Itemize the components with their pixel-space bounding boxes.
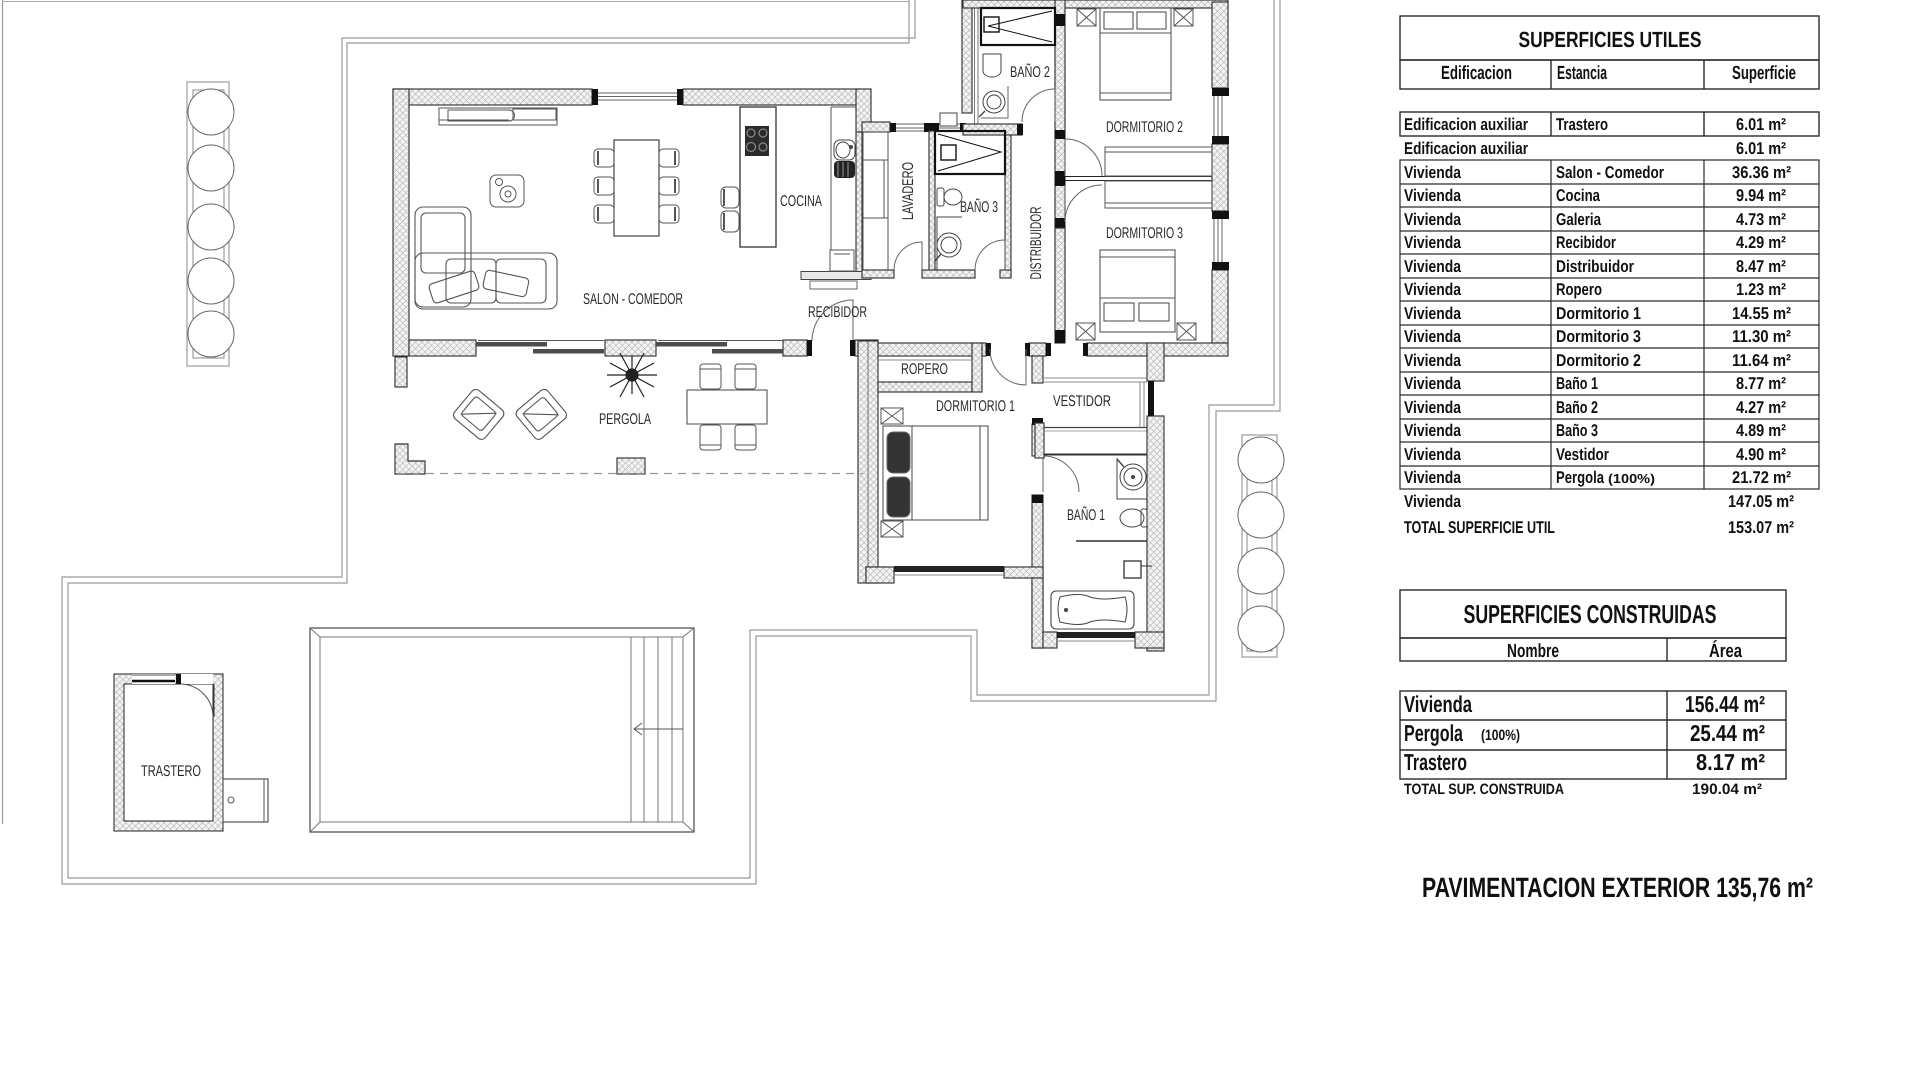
svg-text:TRASTERO: TRASTERO [141,763,201,780]
svg-text:21.72 m²: 21.72 m² [1732,468,1791,487]
svg-text:Vivienda: Vivienda [1404,327,1461,346]
svg-text:Trastero: Trastero [1556,115,1608,134]
svg-text:11.30 m²: 11.30 m² [1732,327,1791,346]
svg-text:Edificacion: Edificacion [1441,63,1512,84]
svg-text:Recibidor: Recibidor [1556,233,1616,252]
svg-text:Trastero: Trastero [1404,749,1467,775]
svg-text:Dormitorio 3: Dormitorio 3 [1556,327,1641,346]
svg-text:Baño 3: Baño 3 [1556,421,1598,440]
svg-text:153.07 m²: 153.07 m² [1728,518,1794,537]
svg-text:BAÑO 1: BAÑO 1 [1067,506,1105,524]
svg-text:ROPERO: ROPERO [901,361,948,378]
svg-text:TOTAL SUP. CONSTRUIDA: TOTAL SUP. CONSTRUIDA [1404,781,1564,798]
svg-text:BAÑO 2: BAÑO 2 [1010,63,1050,81]
svg-text:Vivienda: Vivienda [1404,351,1461,370]
svg-text:Ropero: Ropero [1556,280,1602,299]
svg-text:147.05 m²: 147.05 m² [1728,492,1794,511]
svg-text:Estancia: Estancia [1557,63,1607,84]
svg-text:Edificacion auxiliar: Edificacion auxiliar [1404,115,1528,134]
svg-text:Dormitorio 1: Dormitorio 1 [1556,304,1641,323]
svg-text:(100%): (100%) [1608,471,1655,486]
svg-text:Distribuidor: Distribuidor [1556,257,1634,276]
svg-text:Vivienda: Vivienda [1404,445,1461,464]
svg-text:9.94 m²: 9.94 m² [1736,186,1786,205]
svg-text:8.47 m²: 8.47 m² [1736,257,1786,276]
svg-text:1.23 m²: 1.23 m² [1736,280,1786,299]
svg-text:Vivienda: Vivienda [1404,186,1461,205]
svg-text:Vivienda: Vivienda [1404,492,1461,511]
svg-text:190.04 m²: 190.04 m² [1692,781,1762,798]
svg-text:4.27 m²: 4.27 m² [1736,398,1786,417]
svg-text:DORMITORIO 2: DORMITORIO 2 [1106,119,1183,136]
svg-text:DORMITORIO 3: DORMITORIO 3 [1106,225,1183,242]
svg-text:Dormitorio 2: Dormitorio 2 [1556,351,1641,370]
svg-text:14.55 m²: 14.55 m² [1732,304,1791,323]
svg-text:25.44 m²: 25.44 m² [1690,720,1765,746]
svg-text:Vivienda: Vivienda [1404,398,1461,417]
svg-text:6.01 m²: 6.01 m² [1736,115,1786,134]
svg-text:Vestidor: Vestidor [1556,445,1609,464]
svg-text:Superficie: Superficie [1732,63,1796,84]
svg-text:DORMITORIO 1: DORMITORIO 1 [936,398,1015,415]
svg-text:Vivienda: Vivienda [1404,421,1461,440]
svg-text:8.17 m²: 8.17 m² [1696,749,1765,775]
svg-text:SALON - COMEDOR: SALON - COMEDOR [583,291,683,308]
svg-text:VESTIDOR: VESTIDOR [1053,393,1111,410]
svg-text:RECIBIDOR: RECIBIDOR [808,304,867,321]
svg-text:Vivienda: Vivienda [1404,468,1461,487]
svg-text:Vivienda: Vivienda [1404,257,1461,276]
svg-text:Galeria: Galeria [1556,210,1601,229]
svg-text:Área: Área [1709,640,1742,662]
svg-text:11.64 m²: 11.64 m² [1732,351,1791,370]
svg-text:Nombre: Nombre [1507,641,1559,662]
svg-text:Vivienda: Vivienda [1404,163,1461,182]
svg-text:Vivienda: Vivienda [1404,280,1461,299]
svg-text:PERGOLA: PERGOLA [599,411,651,428]
svg-text:Vivienda: Vivienda [1404,210,1461,229]
svg-text:36.36 m²: 36.36 m² [1732,163,1791,182]
svg-text:Pergola: Pergola [1556,468,1604,487]
svg-text:LAVADERO: LAVADERO [900,162,917,220]
svg-text:4.90 m²: 4.90 m² [1736,445,1786,464]
svg-text:Baño 1: Baño 1 [1556,374,1598,393]
svg-text:Salon - Comedor: Salon - Comedor [1556,163,1664,182]
svg-text:8.77 m²: 8.77 m² [1736,374,1786,393]
svg-text:Vivienda: Vivienda [1404,374,1461,393]
svg-text:Edificacion auxiliar: Edificacion auxiliar [1404,139,1528,158]
svg-text:156.44 m²: 156.44 m² [1685,691,1765,717]
svg-text:COCINA: COCINA [780,193,822,210]
svg-text:Vivienda: Vivienda [1404,304,1461,323]
svg-text:PAVIMENTACION EXTERIOR 135,76: PAVIMENTACION EXTERIOR 135,76 m² [1422,872,1813,903]
svg-text:Pergola: Pergola [1404,720,1463,746]
svg-text:6.01 m²: 6.01 m² [1736,139,1786,158]
svg-text:DISTRIBUIDOR: DISTRIBUIDOR [1028,207,1045,280]
svg-text:SUPERFICIES UTILES: SUPERFICIES UTILES [1519,27,1702,52]
svg-text:(100%): (100%) [1481,727,1520,744]
svg-text:TOTAL SUPERFICIE UTIL: TOTAL SUPERFICIE UTIL [1404,518,1555,537]
svg-text:Vivienda: Vivienda [1404,233,1461,252]
svg-text:4.89 m²: 4.89 m² [1736,421,1786,440]
svg-text:Vivienda: Vivienda [1404,691,1472,717]
svg-text:BAÑO 3: BAÑO 3 [960,198,998,216]
svg-text:Cocina: Cocina [1556,186,1600,205]
svg-text:Baño 2: Baño 2 [1556,398,1598,417]
svg-text:SUPERFICIES CONSTRUIDAS: SUPERFICIES CONSTRUIDAS [1464,599,1717,629]
svg-text:4.29 m²: 4.29 m² [1736,233,1786,252]
svg-text:4.73 m²: 4.73 m² [1736,210,1786,229]
